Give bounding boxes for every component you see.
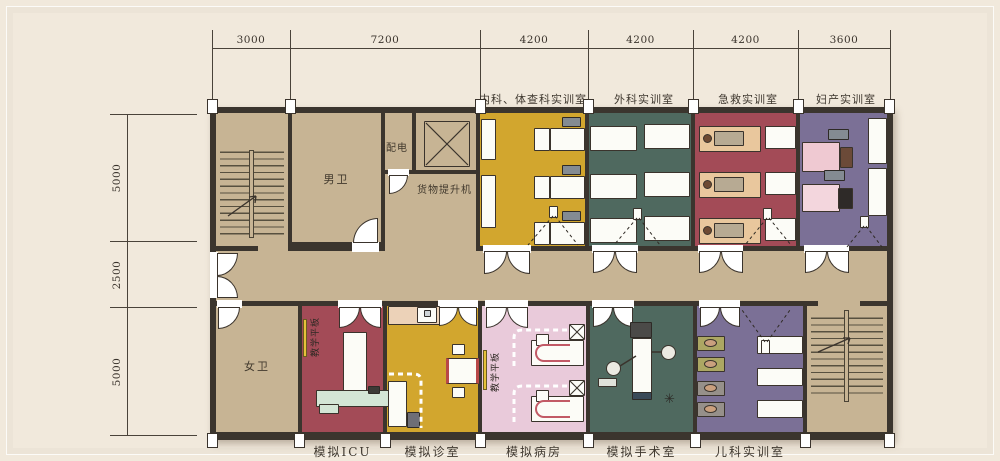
dim-top-6: 3600 [798, 34, 890, 46]
cabinet [481, 119, 496, 160]
gyn-bed-section [840, 147, 853, 168]
training-table [644, 172, 690, 197]
label-clinic: 模拟诊室 [387, 443, 478, 460]
manikin-body [714, 177, 744, 192]
projector-device [860, 216, 869, 228]
column-mark [884, 433, 895, 448]
training-table [590, 218, 637, 243]
gyn-bed-section [838, 188, 853, 209]
label-surgery-room: 外科实训室 [594, 91, 694, 107]
tick [110, 307, 197, 308]
label-female-toilet: 女卫 [216, 358, 298, 374]
infant-manikin [704, 405, 717, 413]
icu-equipment [319, 404, 339, 414]
dim-left-1: 5000 [111, 153, 123, 203]
label-internal-exam-room: 内科、体查科实训室 [478, 91, 588, 107]
label-power-room: 配电 [386, 139, 408, 154]
cabinet [868, 118, 887, 164]
dim-top-3: 4200 [480, 34, 588, 46]
exam-bed-pillow [534, 222, 550, 245]
column-mark [688, 99, 699, 114]
label-teaching-panel-icu: 教学平板 [308, 317, 321, 357]
teaching-panel-strip [483, 350, 487, 390]
instrument-stand-icon: ✳ [664, 392, 675, 407]
training-table [590, 174, 637, 199]
training-table [644, 216, 690, 241]
tick [110, 435, 197, 436]
icu-device [368, 386, 380, 394]
clinic-device [407, 412, 420, 428]
column-mark [207, 433, 218, 448]
dim-top-5: 4200 [693, 34, 798, 46]
monitor-device [562, 165, 581, 175]
training-table [765, 126, 796, 149]
dim-left-3: 5000 [111, 347, 123, 397]
projector-device [549, 206, 558, 218]
surgical-light [606, 361, 621, 376]
gyn-exam-bed [802, 184, 840, 212]
label-icu: 模拟ICU [302, 443, 383, 460]
column-mark [285, 99, 296, 114]
training-table [757, 400, 803, 418]
exam-bed [550, 222, 585, 245]
dim-top-4: 4200 [588, 34, 693, 46]
bedside-table [569, 380, 585, 396]
dim-top-1: 3000 [212, 34, 290, 46]
or-monitor [630, 322, 652, 338]
chair [452, 387, 465, 398]
door-gap [352, 242, 379, 252]
exam-bed [550, 128, 585, 151]
infant-manikin [704, 360, 717, 368]
label-male-toilet: 男卫 [292, 171, 381, 187]
floor-plan-page: 3000 7200 4200 4200 4200 3600 5000 2500 … [0, 0, 1000, 461]
label-cargo-lift: 货物提升机 [417, 181, 472, 196]
cabinet [481, 175, 496, 228]
stair-top-opening [258, 246, 288, 253]
training-table [590, 126, 637, 151]
stair-bottom-opening [818, 301, 860, 308]
consult-desk [446, 358, 479, 384]
surgical-light [661, 345, 676, 360]
label-teaching-panel-ward: 教学平板 [488, 352, 501, 392]
column-mark [475, 99, 486, 114]
teaching-panel-strip [303, 319, 307, 357]
faucet [424, 310, 431, 317]
column-mark [583, 99, 594, 114]
gyn-exam-bed [802, 142, 840, 172]
training-table [765, 218, 796, 241]
corridor [216, 251, 887, 301]
lift-shaft-box [424, 121, 470, 167]
training-table [644, 124, 690, 149]
exam-bed-pillow [534, 128, 550, 151]
dim-line-left [127, 114, 128, 435]
tick [110, 114, 197, 115]
monitor-device [562, 211, 581, 221]
label-pediatrics: 儿科实训室 [697, 443, 803, 460]
tick [110, 241, 197, 242]
infant-manikin [704, 339, 717, 347]
manikin-head [703, 180, 712, 189]
stair-rail-top [249, 150, 254, 238]
training-table [757, 368, 803, 386]
label-obstetrics-room: 妇产实训室 [802, 91, 890, 107]
exam-bed-pillow [534, 176, 550, 199]
column-mark [793, 99, 804, 114]
manikin-body [714, 223, 744, 238]
dim-top-2: 7200 [290, 34, 480, 46]
bed-pillow [536, 334, 549, 346]
exam-bed [550, 176, 585, 199]
manikin-head [703, 134, 712, 143]
bed-pillow [536, 390, 549, 402]
column-mark [884, 99, 895, 114]
bedside-table [569, 324, 585, 340]
infant-manikin [704, 384, 717, 392]
dim-left-2: 2500 [111, 250, 123, 300]
monitor-device [562, 117, 581, 127]
manikin-body [714, 131, 744, 146]
icu-bed [343, 332, 367, 392]
operating-table [632, 338, 652, 394]
projector-device [633, 208, 642, 220]
monitor-device [824, 170, 845, 181]
chair [452, 344, 465, 355]
operating-table-base [632, 392, 652, 400]
exam-bed [388, 381, 407, 427]
label-emergency-room: 急救实训室 [700, 91, 796, 107]
label-ward: 模拟病房 [482, 443, 586, 460]
projector-device [763, 208, 772, 220]
vestibule-opening [385, 246, 476, 253]
dim-line-top [212, 48, 891, 49]
monitor-device [828, 129, 849, 140]
stair-rail-bottom [844, 310, 849, 402]
training-table [765, 172, 796, 195]
grid-line [890, 30, 891, 104]
projector-device [761, 340, 770, 354]
instrument-tray [598, 378, 617, 387]
manikin-head [703, 226, 712, 235]
label-operating: 模拟手术室 [590, 443, 693, 460]
column-mark [207, 99, 218, 114]
cabinet [868, 168, 887, 216]
